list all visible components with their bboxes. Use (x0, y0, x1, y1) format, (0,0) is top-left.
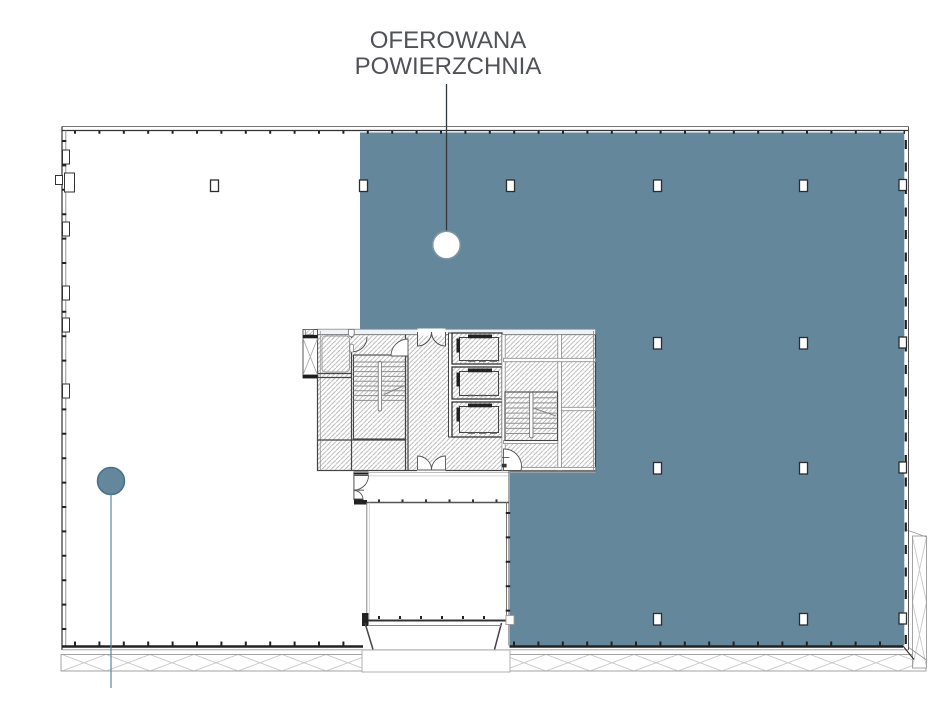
svg-text:OFEROWANA: OFEROWANA (370, 27, 526, 54)
svg-text:POWIERZCHNIA: POWIERZCHNIA (355, 53, 542, 80)
